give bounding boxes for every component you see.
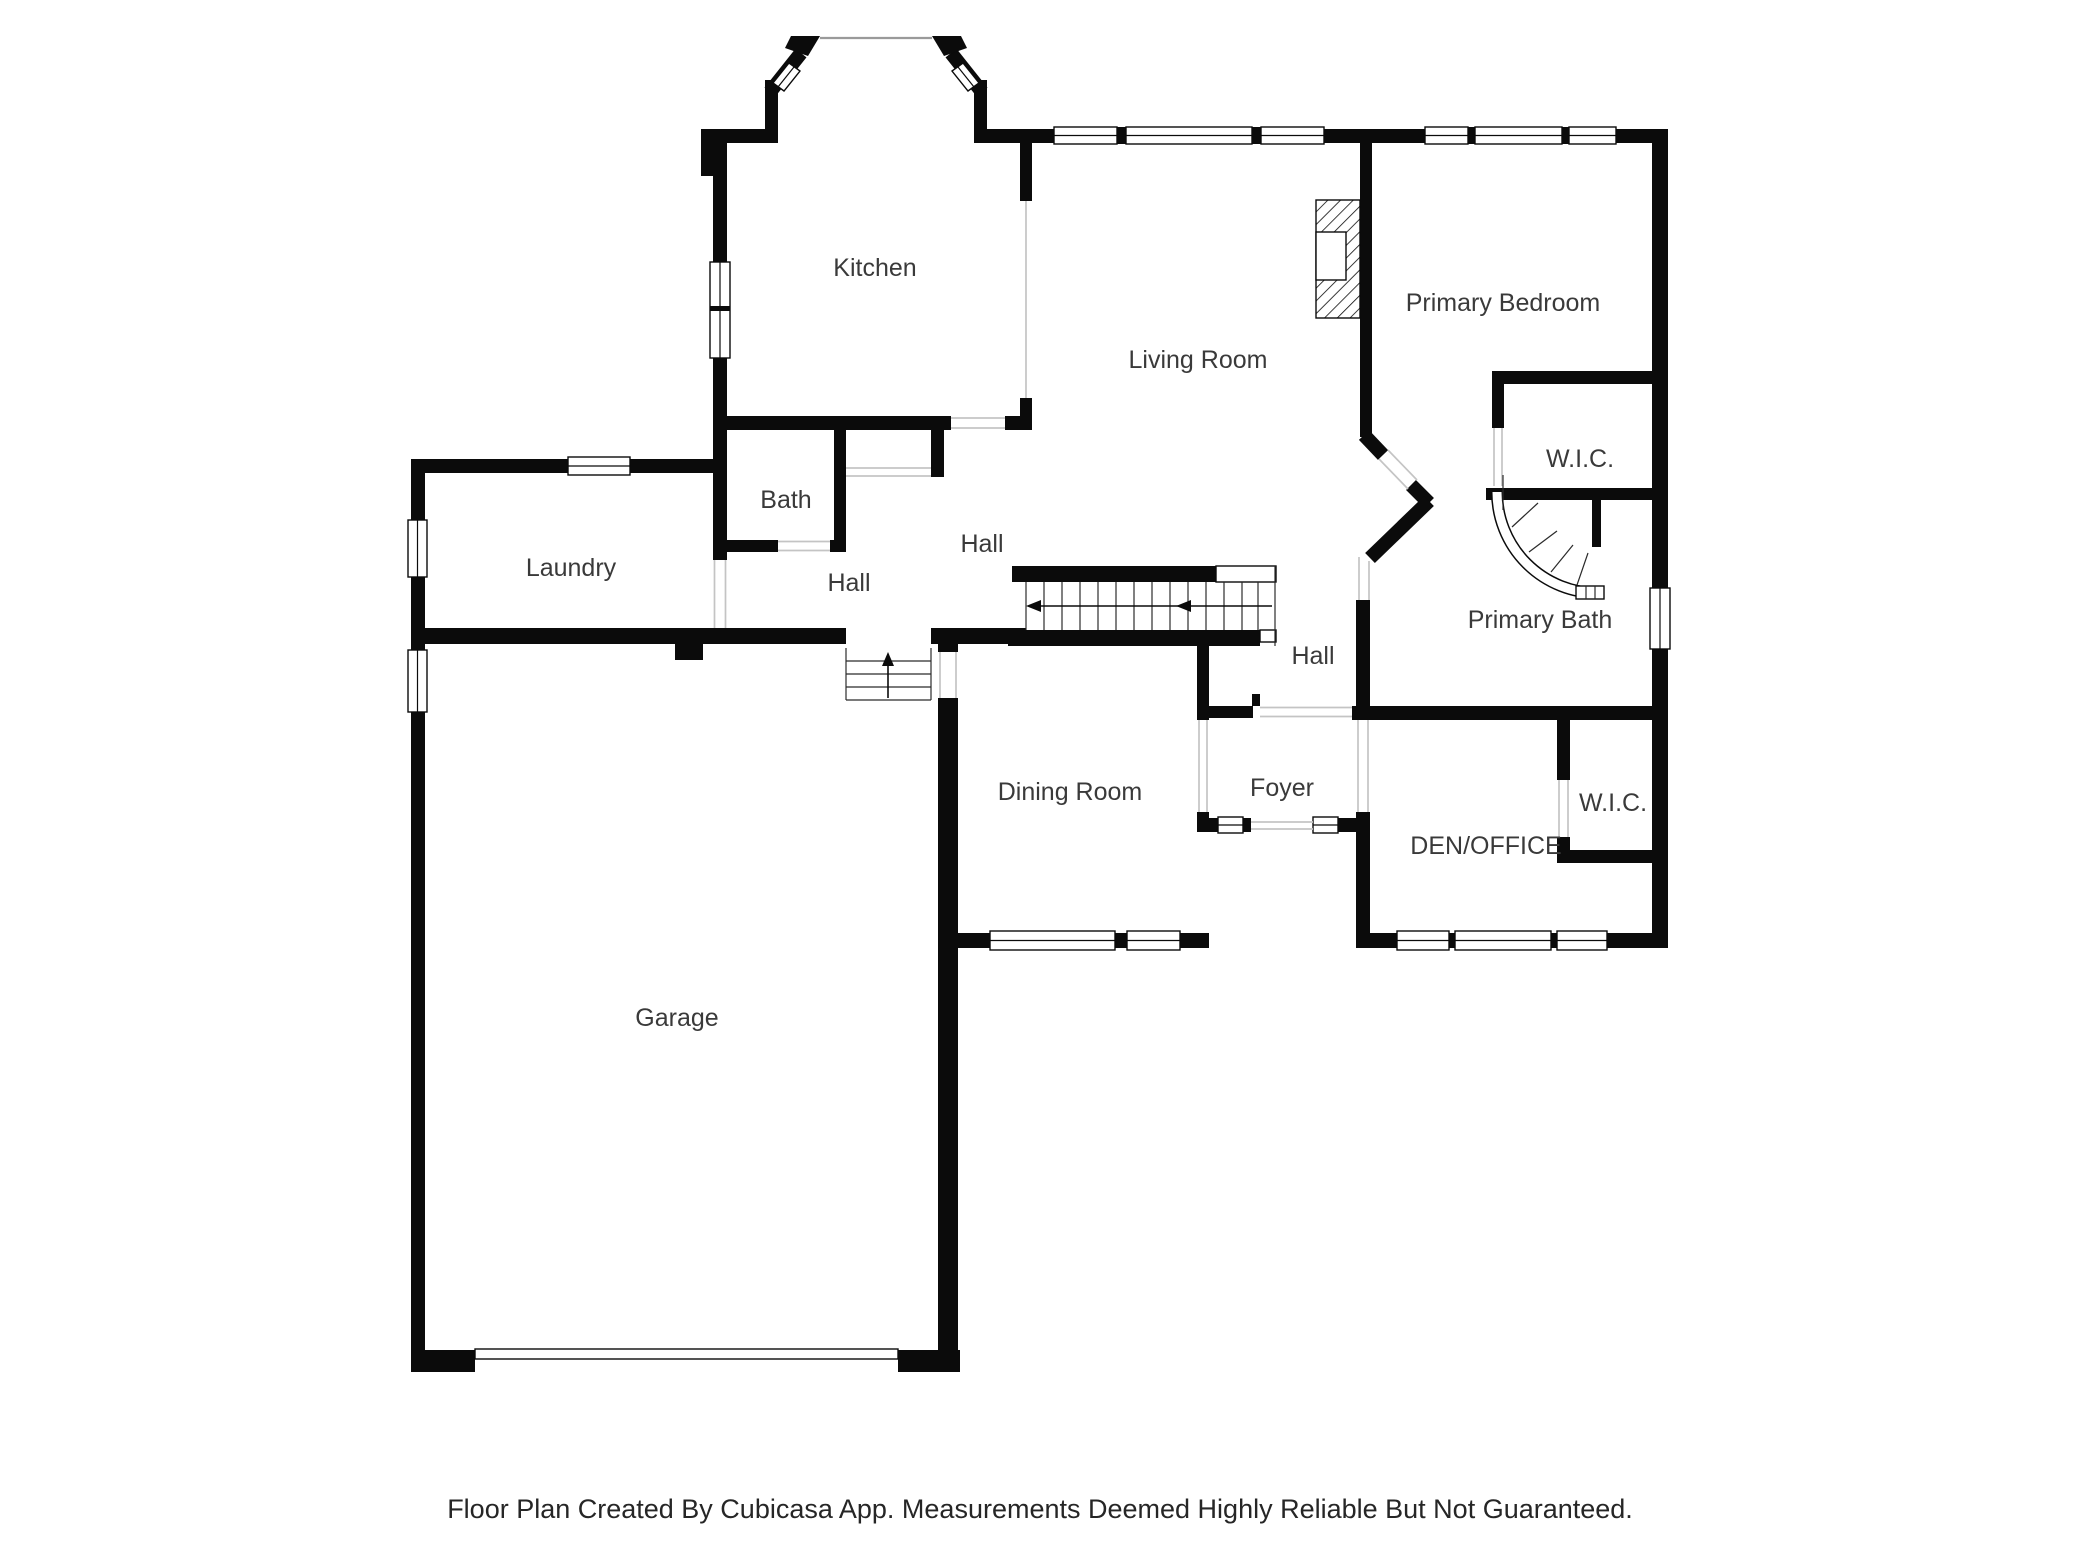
room-label-den-office: DEN/OFFICE: [1410, 832, 1561, 860]
room-label-wic-lower: W.I.C.: [1579, 789, 1647, 817]
room-label-living-room: Living Room: [1129, 346, 1268, 374]
garage-door: [475, 1349, 898, 1359]
room-label-primary-bedroom: Primary Bedroom: [1406, 289, 1601, 317]
room-label-dining-room: Dining Room: [998, 778, 1143, 806]
room-label-primary-bath: Primary Bath: [1468, 606, 1612, 634]
room-label-wic-upper: W.I.C.: [1546, 445, 1614, 473]
fireplace: [1316, 200, 1360, 318]
room-label-laundry: Laundry: [526, 554, 617, 582]
fireplace-firebox: [1316, 232, 1346, 280]
staircase-main: [1008, 566, 1276, 646]
room-label-bath: Bath: [760, 486, 811, 514]
room-label-hall-left: Hall: [827, 569, 870, 597]
floor-plan-page: KitchenLiving RoomPrimary BedroomW.I.C.P…: [0, 0, 2080, 1560]
room-label-hall-lower: Hall: [1291, 642, 1334, 670]
room-label-foyer: Foyer: [1250, 774, 1314, 802]
floor-plan-drawing: KitchenLiving RoomPrimary BedroomW.I.C.P…: [0, 0, 2080, 1560]
room-label-garage: Garage: [635, 1004, 718, 1032]
footer-disclaimer: Floor Plan Created By Cubicasa App. Meas…: [0, 1494, 2080, 1525]
room-label-hall-upper: Hall: [960, 530, 1003, 558]
shower-door-panel: [1576, 586, 1604, 599]
room-label-kitchen: Kitchen: [833, 254, 916, 282]
